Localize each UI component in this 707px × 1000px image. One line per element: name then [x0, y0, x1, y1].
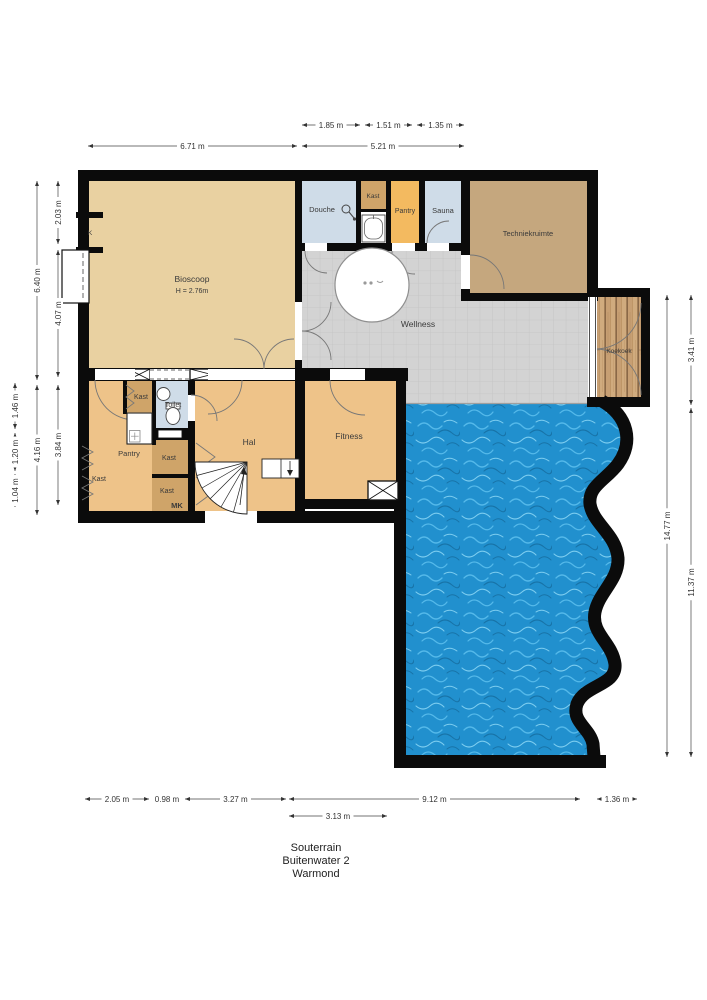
label-hal: Hal — [243, 437, 256, 447]
label-bioscoop-height: H = 2.76m — [176, 288, 209, 295]
dimension-label-group: 4.16 m — [32, 435, 42, 466]
wall — [394, 499, 406, 763]
wall — [152, 474, 195, 478]
wall — [76, 212, 103, 218]
wall — [295, 368, 305, 511]
label-pantry: Pantry — [118, 449, 140, 458]
dimension-label: 11.37 m — [687, 568, 696, 597]
dimension-label-group: 5.21 m — [368, 141, 399, 151]
dimension-label: 1.46 m — [11, 393, 20, 418]
washbasin-icon — [362, 215, 385, 242]
stairs-wall-gap — [205, 511, 257, 523]
label-sauna: Sauna — [432, 206, 455, 215]
room-koekoek — [597, 297, 641, 397]
label-douche: Douche — [309, 205, 335, 214]
dimension-label-group: 1.20 m — [10, 437, 20, 468]
tub-jet — [369, 281, 372, 284]
label-bioscoop: Bioscoop — [175, 274, 210, 284]
dimension-label: 14.77 m — [663, 511, 672, 540]
shaft-box — [368, 481, 398, 500]
dimension-label: 3.41 m — [687, 337, 696, 362]
door-opening — [233, 369, 295, 380]
door-opening — [188, 395, 195, 421]
dimension-label-group: 3.84 m — [53, 430, 63, 461]
door-opening — [95, 369, 135, 380]
label-techniekruimte: Techniekruimte — [503, 229, 553, 238]
title-block: Souterrain Buitenwater 2 Warmond — [282, 842, 349, 880]
door-opening — [208, 369, 242, 380]
wall-opening — [150, 369, 190, 380]
wall — [78, 170, 598, 181]
wall — [587, 397, 650, 407]
dimension-label: 9.12 m — [422, 795, 447, 804]
floorplan-page: Bioscoop H = 2.76m Douche Kast Pantry Sa… — [0, 0, 707, 1000]
label-mk: MK — [171, 501, 183, 510]
label-pantry-boven: Pantry — [395, 208, 416, 215]
stairs-straight — [262, 459, 299, 478]
vent-grille — [158, 430, 182, 438]
dimension-label-group: 14.77 m — [662, 508, 672, 544]
label-kast-boven: Kast — [366, 193, 379, 200]
wall — [78, 170, 89, 523]
dimension-label-group: 11.37 m — [686, 565, 696, 601]
dimension-label-group: 4.07 m — [53, 298, 63, 329]
appliance-icon — [127, 413, 152, 444]
label-koekoek: Koekoek — [606, 348, 632, 355]
wall — [394, 755, 606, 768]
dimension-label-group: 2.03 m — [53, 197, 63, 228]
label-wellness: Wellness — [401, 319, 435, 329]
label-k: K — [88, 230, 93, 237]
dimension-label: 1.04 m — [11, 478, 20, 503]
dimension-label: 1.51 m — [376, 121, 401, 130]
dimension-label: 3.84 m — [54, 432, 63, 457]
dimension-label-group: 1.04 m — [10, 475, 20, 506]
label-fitness: Fitness — [335, 431, 362, 441]
door-opening — [330, 369, 365, 380]
pool — [406, 401, 658, 757]
dimension-label-group: 1.36 m — [602, 794, 633, 804]
dimension-label: 2.05 m — [105, 795, 130, 804]
dimension-label-group: 6.40 m — [32, 265, 42, 296]
dimension-label-group: 3.41 m — [686, 335, 696, 366]
toilet-sink-icon — [157, 388, 170, 401]
dimension-label: 1.20 m — [11, 439, 20, 464]
dimension-label: 3.13 m — [326, 812, 351, 821]
door-opening — [461, 255, 470, 289]
dimension-label: 1.35 m — [428, 121, 453, 130]
door-opening — [305, 243, 327, 251]
dimension-label-group: 1.51 m — [373, 120, 404, 130]
dimension-label-group: 3.27 m — [220, 794, 251, 804]
dimension-label-group: 1.35 m — [425, 120, 456, 130]
dimension-label-group: 9.12 m — [419, 794, 450, 804]
bay-window — [62, 250, 89, 303]
wall — [419, 181, 425, 243]
title-floor: Souterrain — [291, 842, 342, 854]
tub-jet — [363, 281, 366, 284]
dimension-label: 5.21 m — [371, 142, 396, 151]
dimension-label: 6.71 m — [180, 142, 205, 151]
wellness-tub — [335, 248, 409, 322]
label-toilet: Toilet — [165, 402, 181, 409]
dimension-label: 1.36 m — [605, 795, 630, 804]
dimension-label: 6.40 m — [33, 268, 42, 293]
dimension-label-group: 6.71 m — [177, 141, 208, 151]
dimension-label: 4.07 m — [54, 301, 63, 326]
label-kast-onder: Kast — [160, 488, 174, 495]
floorplan-svg: Bioscoop H = 2.76m Douche Kast Pantry Sa… — [0, 0, 707, 1000]
wall — [461, 293, 598, 301]
dimension-label-group: 2.05 m — [102, 794, 133, 804]
label-kast-a: Kast — [134, 394, 148, 401]
dimension-label: 4.16 m — [33, 437, 42, 462]
title-address: Buitenwater 2 — [282, 855, 349, 867]
dimension-label-group: 1.85 m — [316, 120, 347, 130]
label-kast-midden: Kast — [162, 455, 176, 462]
dimension-label: 0.98 m — [155, 795, 180, 804]
dimension-label: 3.27 m — [223, 795, 248, 804]
wall — [641, 288, 650, 407]
wall — [587, 170, 598, 297]
dimension-label-group: 3.13 m — [323, 811, 354, 821]
label-kast-links: Kast — [92, 476, 106, 483]
dimension-label-group: 1.46 m — [10, 391, 20, 422]
wall — [358, 209, 389, 212]
title-city: Warmond — [292, 868, 339, 880]
door-opening — [427, 243, 449, 251]
dimension-label: 1.85 m — [319, 121, 344, 130]
door-opening — [295, 302, 302, 360]
door-opening — [392, 243, 415, 251]
dimension-label: 2.03 m — [54, 200, 63, 225]
dimension-label-group: 0.98 m — [152, 794, 183, 804]
